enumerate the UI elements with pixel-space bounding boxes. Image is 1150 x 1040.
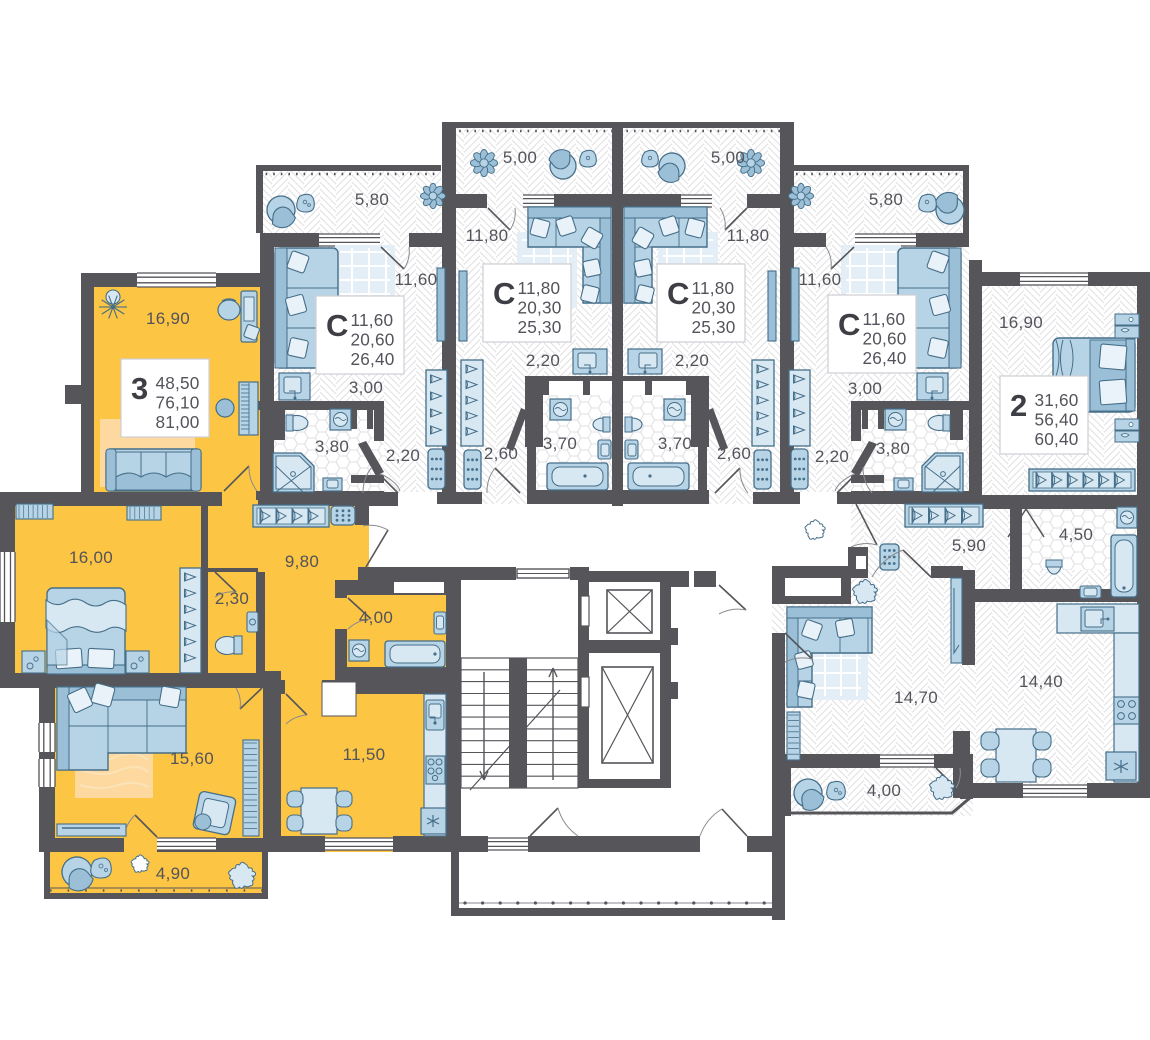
svg-text:2,20: 2,20: [815, 447, 849, 466]
svg-text:5,00: 5,00: [711, 148, 745, 167]
svg-text:С: С: [838, 307, 860, 342]
svg-text:3,80: 3,80: [876, 439, 910, 458]
svg-text:11,60: 11,60: [799, 270, 842, 289]
svg-text:16,90: 16,90: [146, 309, 190, 328]
svg-text:3: 3: [131, 371, 148, 406]
svg-text:48,50: 48,50: [156, 373, 200, 393]
svg-text:2: 2: [1010, 388, 1027, 423]
svg-text:20,60: 20,60: [863, 329, 907, 349]
svg-text:20,30: 20,30: [692, 298, 736, 318]
svg-text:2,20: 2,20: [526, 351, 560, 370]
svg-text:81,00: 81,00: [156, 412, 200, 432]
svg-text:31,60: 31,60: [1035, 390, 1079, 410]
svg-text:11,80: 11,80: [466, 226, 509, 245]
svg-text:14,70: 14,70: [894, 688, 938, 707]
svg-text:С: С: [493, 276, 515, 311]
svg-text:26,40: 26,40: [863, 348, 907, 368]
svg-text:25,30: 25,30: [692, 317, 736, 337]
svg-text:16,00: 16,00: [69, 548, 113, 567]
svg-text:5,80: 5,80: [869, 190, 903, 209]
svg-text:76,10: 76,10: [156, 393, 200, 413]
svg-text:С: С: [326, 308, 348, 343]
svg-text:2,20: 2,20: [386, 446, 420, 465]
svg-text:20,30: 20,30: [518, 298, 562, 318]
svg-text:16,90: 16,90: [999, 313, 1043, 332]
svg-text:3,00: 3,00: [848, 379, 882, 398]
svg-text:11,60: 11,60: [863, 309, 906, 329]
svg-text:С: С: [667, 276, 689, 311]
svg-text:2,20: 2,20: [675, 351, 709, 370]
svg-text:3,00: 3,00: [349, 378, 383, 397]
svg-text:11,80: 11,80: [692, 278, 735, 298]
svg-text:2,60: 2,60: [484, 444, 518, 463]
svg-text:4,00: 4,00: [359, 608, 393, 627]
svg-text:5,90: 5,90: [952, 536, 986, 555]
svg-text:2,60: 2,60: [717, 444, 751, 463]
svg-text:11,80: 11,80: [518, 278, 561, 298]
svg-text:9,80: 9,80: [285, 552, 319, 571]
svg-text:5,00: 5,00: [503, 148, 537, 167]
svg-text:25,30: 25,30: [518, 317, 562, 337]
svg-text:60,40: 60,40: [1035, 429, 1079, 449]
svg-text:4,90: 4,90: [156, 864, 190, 883]
svg-text:15,60: 15,60: [170, 749, 214, 768]
svg-text:11,80: 11,80: [727, 226, 770, 245]
svg-text:11,60: 11,60: [395, 270, 438, 289]
svg-text:14,40: 14,40: [1019, 672, 1063, 691]
svg-text:11,60: 11,60: [351, 310, 394, 330]
svg-text:56,40: 56,40: [1035, 410, 1079, 430]
svg-text:11,50: 11,50: [343, 745, 386, 764]
svg-text:4,50: 4,50: [1059, 525, 1093, 544]
svg-text:3,70: 3,70: [543, 434, 577, 453]
svg-text:3,80: 3,80: [315, 437, 349, 456]
svg-text:5,80: 5,80: [355, 190, 389, 209]
svg-text:26,40: 26,40: [351, 349, 395, 369]
svg-text:20,60: 20,60: [351, 330, 395, 350]
svg-text:3,70: 3,70: [658, 434, 692, 453]
svg-text:4,00: 4,00: [867, 781, 901, 800]
